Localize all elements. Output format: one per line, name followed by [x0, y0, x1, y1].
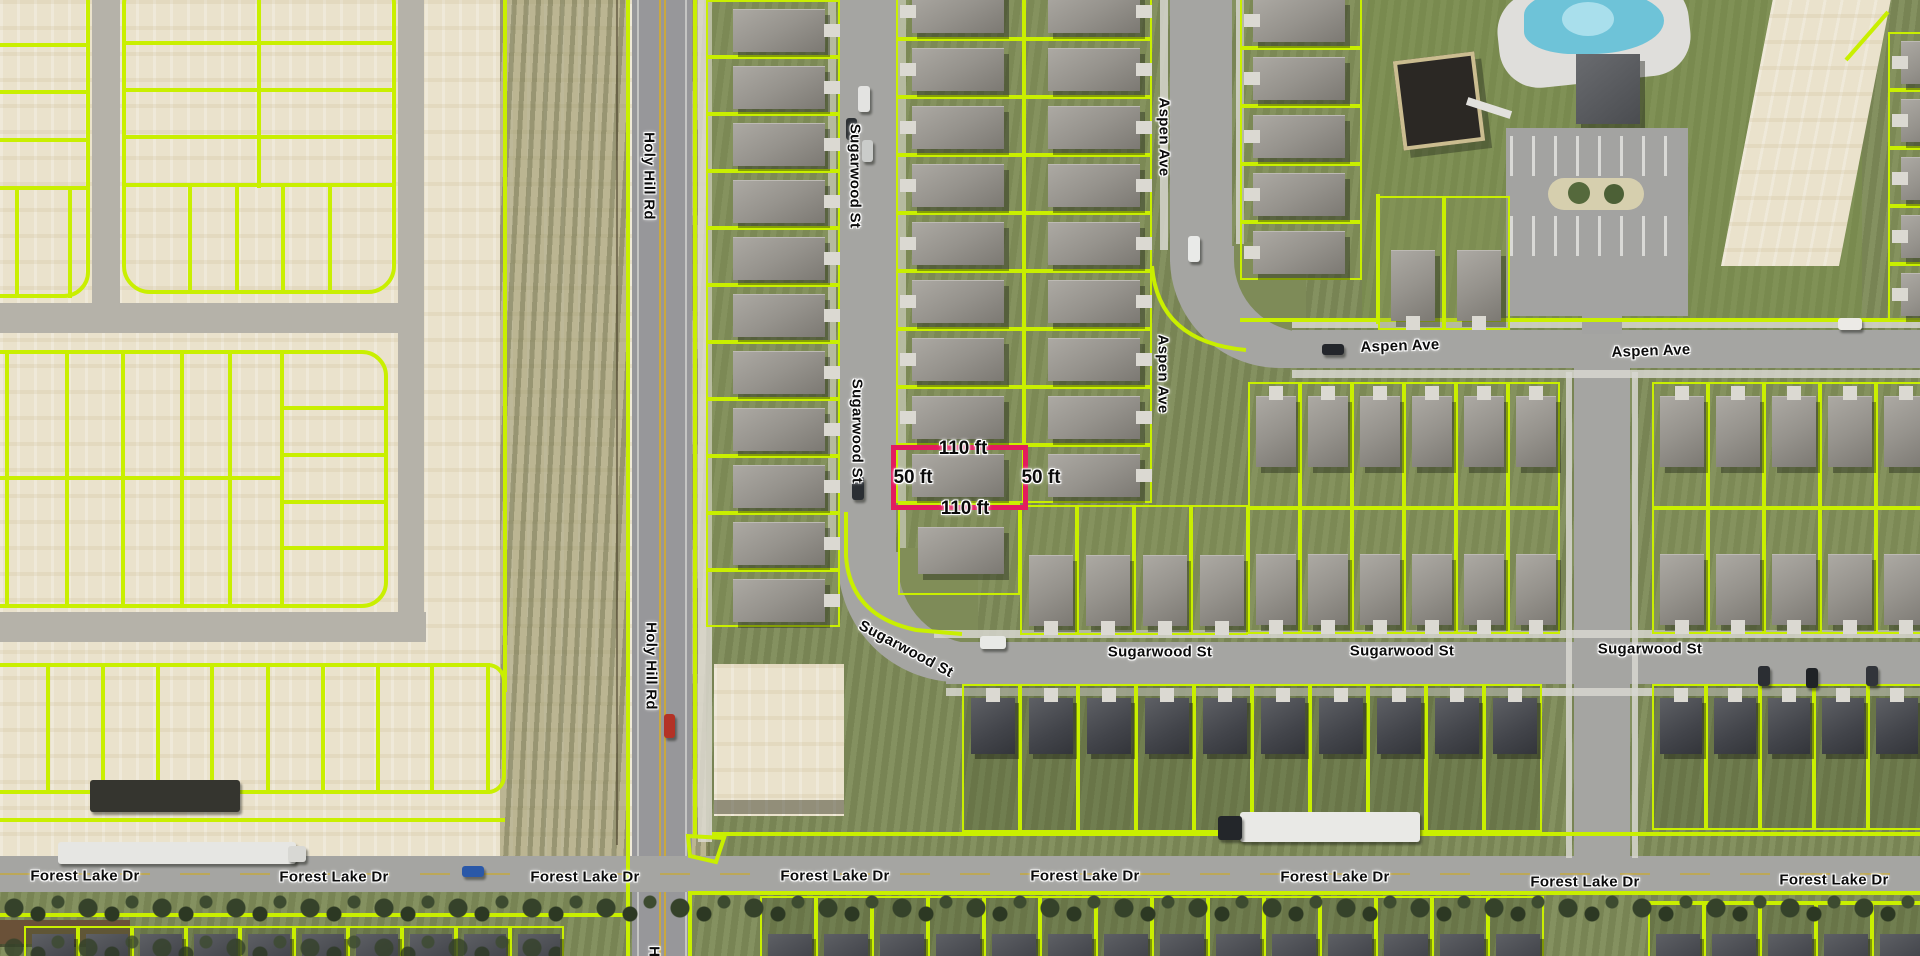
driveway	[1674, 688, 1688, 702]
parking-stalls	[1510, 216, 1684, 256]
parcel-lot[interactable]	[1760, 684, 1814, 830]
driveway	[1160, 688, 1174, 702]
dirt-patch-shadow	[714, 800, 844, 814]
parcel-lot[interactable]	[896, 97, 1024, 155]
house	[1308, 396, 1348, 467]
road-edge-line	[685, 0, 687, 956]
street-label-holy-hill-rd-2: Holy Hill Rd	[643, 622, 660, 710]
driveway	[1731, 386, 1745, 400]
parcel-lot[interactable]	[706, 285, 840, 342]
driveway	[1136, 121, 1152, 134]
parcel-lot[interactable]	[706, 0, 840, 57]
parcel-lot[interactable]	[1820, 508, 1876, 634]
house	[733, 408, 825, 451]
parcel-lot[interactable]	[1310, 684, 1368, 832]
parcel-lot[interactable]	[1300, 382, 1352, 508]
street-label-sugarwood-st-v2: Sugarwood St	[849, 379, 866, 483]
parking-island	[1548, 178, 1644, 210]
parcel-lot[interactable]	[1024, 39, 1152, 97]
driveway	[824, 24, 840, 37]
vehicle	[1758, 666, 1770, 686]
parcel-line	[1240, 318, 1920, 322]
parcel-lot[interactable]	[1248, 508, 1300, 634]
house	[1828, 554, 1872, 625]
driveway	[1136, 237, 1152, 250]
sidewalk	[1632, 372, 1638, 858]
street-label-aspen-ave-h2: Aspen Ave	[1611, 341, 1691, 361]
map-canvas[interactable]: 110 ft50 ft50 ft110 ftHoly Hill RdHoly H…	[0, 0, 1920, 956]
house	[1328, 934, 1372, 956]
driveway	[1269, 386, 1283, 400]
parcel-line	[0, 186, 90, 190]
street-label-forest-lake-dr-5: Forest Lake Dr	[1030, 868, 1139, 885]
parcel-lot[interactable]	[1888, 264, 1920, 322]
parcel-lot[interactable]	[706, 114, 840, 171]
driveway	[824, 138, 840, 151]
house	[1772, 554, 1816, 625]
driveway	[1136, 5, 1152, 18]
parcel-lot[interactable]	[1368, 684, 1426, 832]
parcel-lot[interactable]	[1764, 508, 1820, 634]
parcel-lot[interactable]	[1020, 684, 1078, 832]
house	[1200, 555, 1244, 626]
parcel-line	[486, 663, 490, 794]
parcel-lot[interactable]	[1652, 508, 1708, 634]
parcel-lot[interactable]	[1240, 106, 1362, 164]
driveway	[1392, 688, 1406, 702]
street-label-forest-lake-dr-8: Forest Lake Dr	[1779, 872, 1888, 889]
driveway	[1044, 688, 1058, 702]
parcel-lot[interactable]	[706, 456, 840, 513]
parking-stalls	[1510, 136, 1684, 176]
parcel-lot[interactable]	[1652, 382, 1708, 508]
parcel-lot[interactable]	[1024, 0, 1152, 39]
parcel-line	[122, 135, 396, 139]
dirt-patch	[714, 664, 844, 816]
vehicle	[1240, 812, 1420, 842]
house	[1319, 698, 1363, 754]
house	[912, 396, 1004, 439]
parcel-line	[46, 663, 50, 794]
house	[1768, 698, 1810, 754]
dirt-road	[0, 612, 426, 642]
parcel-lot[interactable]	[896, 39, 1024, 97]
parcel-lot[interactable]	[962, 684, 1020, 832]
house	[918, 527, 1004, 574]
parcel-lot[interactable]	[706, 342, 840, 399]
parcel-line	[376, 663, 380, 794]
driveway	[1892, 288, 1908, 301]
driveway	[1899, 386, 1913, 400]
driveway	[1321, 386, 1335, 400]
parcel-lot[interactable]	[706, 570, 840, 627]
parcel-lot[interactable]	[1194, 684, 1252, 832]
driveway	[1529, 386, 1543, 400]
road-aspen-vertical	[1170, 0, 1232, 262]
parcel-lot[interactable]	[1252, 684, 1310, 832]
driveway	[1044, 621, 1058, 635]
house	[1464, 554, 1504, 625]
vehicle	[862, 140, 873, 162]
driveway	[1787, 620, 1801, 634]
parcel-lot[interactable]	[706, 228, 840, 285]
driveway	[1477, 620, 1491, 634]
house	[1048, 934, 1092, 956]
driveway	[1843, 620, 1857, 634]
parcel-lot[interactable]	[1240, 48, 1362, 106]
driveway	[1136, 63, 1152, 76]
parcel-lot[interactable]	[896, 271, 1024, 329]
parcel-lot[interactable]	[1888, 90, 1920, 148]
driveway	[1244, 130, 1260, 143]
parcel-line	[122, 41, 396, 45]
dimension-label: 110 ft	[939, 438, 988, 460]
street-label-sugarwood-st-h2: Sugarwood St	[1350, 643, 1454, 660]
parcel-line	[280, 500, 388, 504]
driveway	[900, 121, 916, 134]
sidewalk	[1292, 370, 1920, 378]
parcel-lot[interactable]	[1024, 271, 1152, 329]
driveway	[1136, 353, 1152, 366]
house	[1253, 173, 1345, 216]
house	[1824, 934, 1868, 956]
parcel-lot[interactable]	[1024, 97, 1152, 155]
road-center-line	[664, 0, 666, 956]
house	[733, 351, 825, 394]
house	[1104, 934, 1148, 956]
street-label-aspen-ave-v1: Aspen Ave	[1156, 97, 1173, 176]
house	[1048, 396, 1140, 439]
driveway	[824, 252, 840, 265]
parcel-lot[interactable]	[1708, 508, 1764, 634]
house	[1493, 698, 1537, 754]
house	[1768, 934, 1812, 956]
parcel-line	[321, 663, 325, 794]
driveway	[824, 195, 840, 208]
parcel-line	[281, 183, 285, 293]
parcel-line	[280, 546, 388, 550]
house	[1772, 396, 1816, 467]
driveway	[1425, 620, 1439, 634]
house	[1253, 0, 1345, 42]
vehicle	[1838, 318, 1862, 330]
house	[824, 934, 868, 956]
driveway	[1136, 295, 1152, 308]
parcel-lot[interactable]	[1456, 382, 1508, 508]
house	[1216, 934, 1260, 956]
parcel-lot[interactable]	[1484, 684, 1542, 832]
house	[1253, 57, 1345, 100]
parcel-lot[interactable]	[896, 387, 1024, 445]
parcel-lot[interactable]	[1876, 382, 1920, 508]
vehicle	[1806, 668, 1818, 688]
driveway	[824, 537, 840, 550]
house	[1828, 396, 1872, 467]
house	[1256, 396, 1296, 467]
driveway	[1269, 620, 1283, 634]
parcel-line	[626, 0, 630, 956]
street-label-sugarwood-st-h3: Sugarwood St	[1598, 641, 1702, 658]
parcel-lot[interactable]	[706, 399, 840, 456]
dimension-label: 50 ft	[893, 467, 932, 489]
house	[1145, 698, 1189, 754]
driveway	[986, 688, 1000, 702]
parcel-lot[interactable]	[1508, 508, 1560, 634]
driveway	[900, 179, 916, 192]
house	[912, 106, 1004, 149]
driveway	[824, 366, 840, 379]
parcel-lot[interactable]	[1020, 505, 1077, 635]
house	[971, 698, 1015, 754]
parcel-lot[interactable]	[1024, 387, 1152, 445]
parcel-line	[68, 186, 72, 298]
driveway	[1276, 688, 1290, 702]
parcel-lot[interactable]	[1888, 206, 1920, 264]
house	[1160, 934, 1204, 956]
parcel-lot[interactable]	[1024, 213, 1152, 271]
house	[1143, 555, 1187, 626]
house	[1656, 934, 1700, 956]
parking-entry	[1582, 312, 1622, 334]
road-cross-street	[1574, 366, 1630, 860]
house	[1880, 934, 1920, 956]
street-label-aspen-ave-h1: Aspen Ave	[1360, 336, 1440, 356]
vehicle	[90, 780, 240, 812]
house	[1660, 396, 1704, 467]
house	[1516, 554, 1556, 625]
driveway	[824, 480, 840, 493]
house	[1716, 554, 1760, 625]
driveway	[1892, 56, 1908, 69]
parcel-line	[257, 0, 261, 188]
house	[1048, 164, 1140, 207]
driveway	[1101, 621, 1115, 635]
house	[1516, 396, 1556, 467]
house	[1256, 554, 1296, 625]
parcel-line	[0, 138, 90, 142]
driveway	[824, 81, 840, 94]
parcel-lot[interactable]	[1888, 32, 1920, 90]
house	[1048, 106, 1140, 149]
house	[1377, 698, 1421, 754]
house	[733, 522, 825, 565]
driveway	[1892, 114, 1908, 127]
driveway	[1321, 620, 1335, 634]
parcel-lot[interactable]	[896, 0, 1024, 39]
street-label-forest-lake-dr-4: Forest Lake Dr	[780, 868, 889, 885]
driveway	[1508, 688, 1522, 702]
driveway	[1892, 172, 1908, 185]
street-label-forest-lake-dr-1: Forest Lake Dr	[30, 868, 139, 885]
parcel-line	[156, 663, 160, 794]
tree-row	[0, 930, 560, 956]
driveway	[1477, 386, 1491, 400]
driveway	[1899, 620, 1913, 634]
parcel-line	[328, 183, 332, 293]
house	[1048, 222, 1140, 265]
house	[1384, 934, 1428, 956]
parcel-line	[101, 663, 105, 794]
parcel-line	[503, 0, 507, 692]
parcel-lot[interactable]	[1706, 684, 1760, 830]
house	[1048, 454, 1140, 497]
vehicle	[664, 714, 675, 738]
parcel-lot[interactable]	[1404, 382, 1456, 508]
parcel-lot[interactable]	[1404, 508, 1456, 634]
parcel-lot[interactable]	[1191, 505, 1248, 635]
house	[733, 465, 825, 508]
parcel-lot[interactable]	[1136, 684, 1194, 832]
driveway	[1136, 469, 1152, 482]
house	[1029, 698, 1073, 754]
street-label-holy-hill-rd-1: Holy Hill Rd	[641, 132, 658, 220]
house	[1272, 934, 1316, 956]
driveway	[1218, 688, 1232, 702]
dimension-label: 50 ft	[1021, 467, 1060, 489]
parcel-lot[interactable]	[1508, 382, 1560, 508]
house	[912, 164, 1004, 207]
house	[1660, 554, 1704, 625]
driveway	[1675, 620, 1689, 634]
driveway	[1373, 620, 1387, 634]
driveway	[1836, 688, 1850, 702]
house	[1308, 554, 1348, 625]
house	[912, 222, 1004, 265]
house	[733, 9, 825, 52]
parcel-lot[interactable]	[1300, 508, 1352, 634]
house	[1391, 250, 1435, 321]
house	[733, 66, 825, 109]
parcel-lot[interactable]	[1378, 196, 1444, 330]
driveway	[1102, 688, 1116, 702]
dimension-label: 110 ft	[941, 498, 990, 520]
parcel-lot[interactable]	[1814, 684, 1868, 830]
parcel-lot[interactable]	[1240, 0, 1362, 48]
tree-row	[0, 890, 1920, 930]
house	[912, 280, 1004, 323]
parcel-lot[interactable]	[1868, 684, 1920, 830]
vehicle	[1322, 344, 1344, 355]
parcel-lot[interactable]	[1444, 196, 1510, 330]
house	[1712, 934, 1756, 956]
street-label-forest-lake-dr-6: Forest Lake Dr	[1280, 869, 1389, 886]
street-label-aspen-ave-v2: Aspen Ave	[1155, 334, 1172, 413]
street-label-forest-lake-dr-3: Forest Lake Dr	[530, 869, 639, 886]
dirt-road	[92, 0, 120, 320]
parcel-lot[interactable]	[896, 213, 1024, 271]
parcel-lot[interactable]	[1426, 684, 1484, 832]
driveway	[1450, 688, 1464, 702]
street-label-sugarwood-st-v1: Sugarwood St	[847, 124, 864, 228]
parcel-line	[280, 406, 388, 410]
parcel-lot[interactable]	[706, 171, 840, 228]
parcel-line	[122, 183, 396, 187]
parcel-lot[interactable]	[1456, 508, 1508, 634]
street-label-holy-hill-rd-3: Holy Hill Rd	[646, 946, 663, 956]
parcel-lot[interactable]	[706, 57, 840, 114]
driveway	[1782, 688, 1796, 702]
house	[1884, 396, 1920, 467]
driveway	[1215, 621, 1229, 635]
sidewalk	[1566, 372, 1572, 858]
parcel-lot[interactable]	[1352, 382, 1404, 508]
parcel-line	[693, 0, 697, 838]
house	[1360, 396, 1400, 467]
parcel-lot[interactable]	[1078, 684, 1136, 832]
driveway	[1244, 246, 1260, 259]
house	[912, 338, 1004, 381]
parcel-lot[interactable]	[1248, 382, 1300, 508]
vehicle	[980, 636, 1006, 649]
parcel-lot[interactable]	[1240, 164, 1362, 222]
parcel-lot[interactable]	[896, 155, 1024, 213]
house	[1464, 396, 1504, 467]
driveway	[1425, 386, 1439, 400]
road-center-line	[659, 0, 661, 956]
house	[1048, 280, 1140, 323]
house	[1360, 554, 1400, 625]
driveway	[900, 411, 916, 424]
parcel-lot[interactable]	[1134, 505, 1191, 635]
island-shrub	[1568, 182, 1590, 204]
house	[1412, 554, 1452, 625]
parcel-line	[15, 186, 19, 298]
parcel-line	[0, 818, 505, 822]
driveway	[824, 423, 840, 436]
parcel-line	[122, 88, 396, 92]
house	[1457, 250, 1501, 321]
parcel-line	[266, 663, 270, 794]
parcel-lot[interactable]	[1888, 148, 1920, 206]
driveway	[1843, 386, 1857, 400]
parcel-lot[interactable]	[1024, 155, 1152, 213]
house	[1660, 698, 1702, 754]
parcel-lot[interactable]	[1077, 505, 1134, 635]
road-edge-line	[637, 0, 639, 956]
house	[1087, 698, 1131, 754]
vehicle	[1866, 666, 1878, 686]
parcel-lot[interactable]	[1352, 508, 1404, 634]
parcel-lot[interactable]	[1652, 684, 1706, 830]
parcel-lot[interactable]	[1024, 329, 1152, 387]
clubhouse-roof	[1576, 54, 1640, 124]
house	[1496, 934, 1540, 956]
parcel-lot[interactable]	[706, 513, 840, 570]
house	[1048, 48, 1140, 91]
house	[1412, 396, 1452, 467]
parcel-line	[430, 663, 434, 794]
house	[1253, 231, 1345, 274]
house	[733, 579, 825, 622]
parcel-lot[interactable]	[1876, 508, 1920, 634]
parcel-lot[interactable]	[1240, 222, 1362, 280]
driveway	[1529, 620, 1543, 634]
vehicle	[1188, 236, 1200, 262]
house	[768, 934, 812, 956]
driveway	[900, 237, 916, 250]
driveway	[1158, 621, 1172, 635]
parcel-lot[interactable]	[1820, 382, 1876, 508]
house	[1261, 698, 1305, 754]
driveway	[824, 594, 840, 607]
parcel-lot[interactable]	[1764, 382, 1820, 508]
parcel-lot[interactable]	[896, 329, 1024, 387]
house	[733, 123, 825, 166]
parcel-lot[interactable]	[1708, 382, 1764, 508]
parcel-line	[280, 453, 388, 457]
fence-line	[616, 0, 618, 845]
house	[912, 0, 1004, 33]
